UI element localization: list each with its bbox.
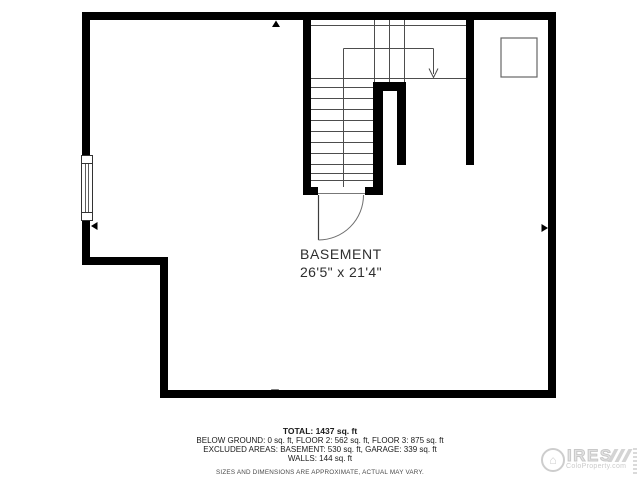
marker-left-icon (91, 222, 98, 230)
wall-notch-horizontal (82, 257, 168, 265)
wall-markers (91, 21, 548, 397)
wall-bottom (160, 390, 556, 398)
watermark-microtext (633, 448, 637, 475)
interior-wall-right (466, 20, 474, 165)
stairwell-wall-left (303, 20, 311, 195)
marker-top-icon (272, 21, 280, 28)
room-name: BASEMENT (300, 245, 382, 263)
house-icon: ⌂ (549, 453, 556, 467)
summary-total: TOTAL: 1437 sq. ft (0, 427, 640, 436)
watermark-logo-circle: ⌂ (541, 448, 565, 472)
stair-walk-line (344, 49, 439, 188)
wall-top (82, 12, 556, 20)
stairwell-walls (303, 20, 474, 195)
left-wall-window (82, 156, 93, 221)
watermark: ⌂ IRES ColoProperty.com (541, 446, 638, 478)
door-swing-arc (319, 195, 364, 240)
marker-right-icon (542, 224, 549, 232)
watermark-slashes-icon (611, 449, 629, 462)
stairwell-wall-bottom-left (303, 187, 318, 195)
room-label: BASEMENT 26'5" x 21'4" (300, 245, 382, 281)
watermark-site: ColoProperty.com (566, 463, 626, 470)
stair-center-wall-right-leg (397, 82, 406, 165)
basement-door (318, 194, 365, 241)
room-dimensions: 26'5" x 21'4" (300, 263, 382, 281)
wall-left-upper (82, 12, 90, 155)
utility-box (501, 38, 537, 77)
floorplan-drawing (0, 0, 640, 480)
summary-floors: BELOW GROUND: 0 sq. ft, FLOOR 2: 562 sq.… (0, 436, 640, 445)
wall-notch-vertical (160, 257, 168, 398)
wall-right (548, 12, 556, 398)
stair-treads (311, 20, 466, 181)
stair-center-wall-left-leg (373, 82, 383, 195)
